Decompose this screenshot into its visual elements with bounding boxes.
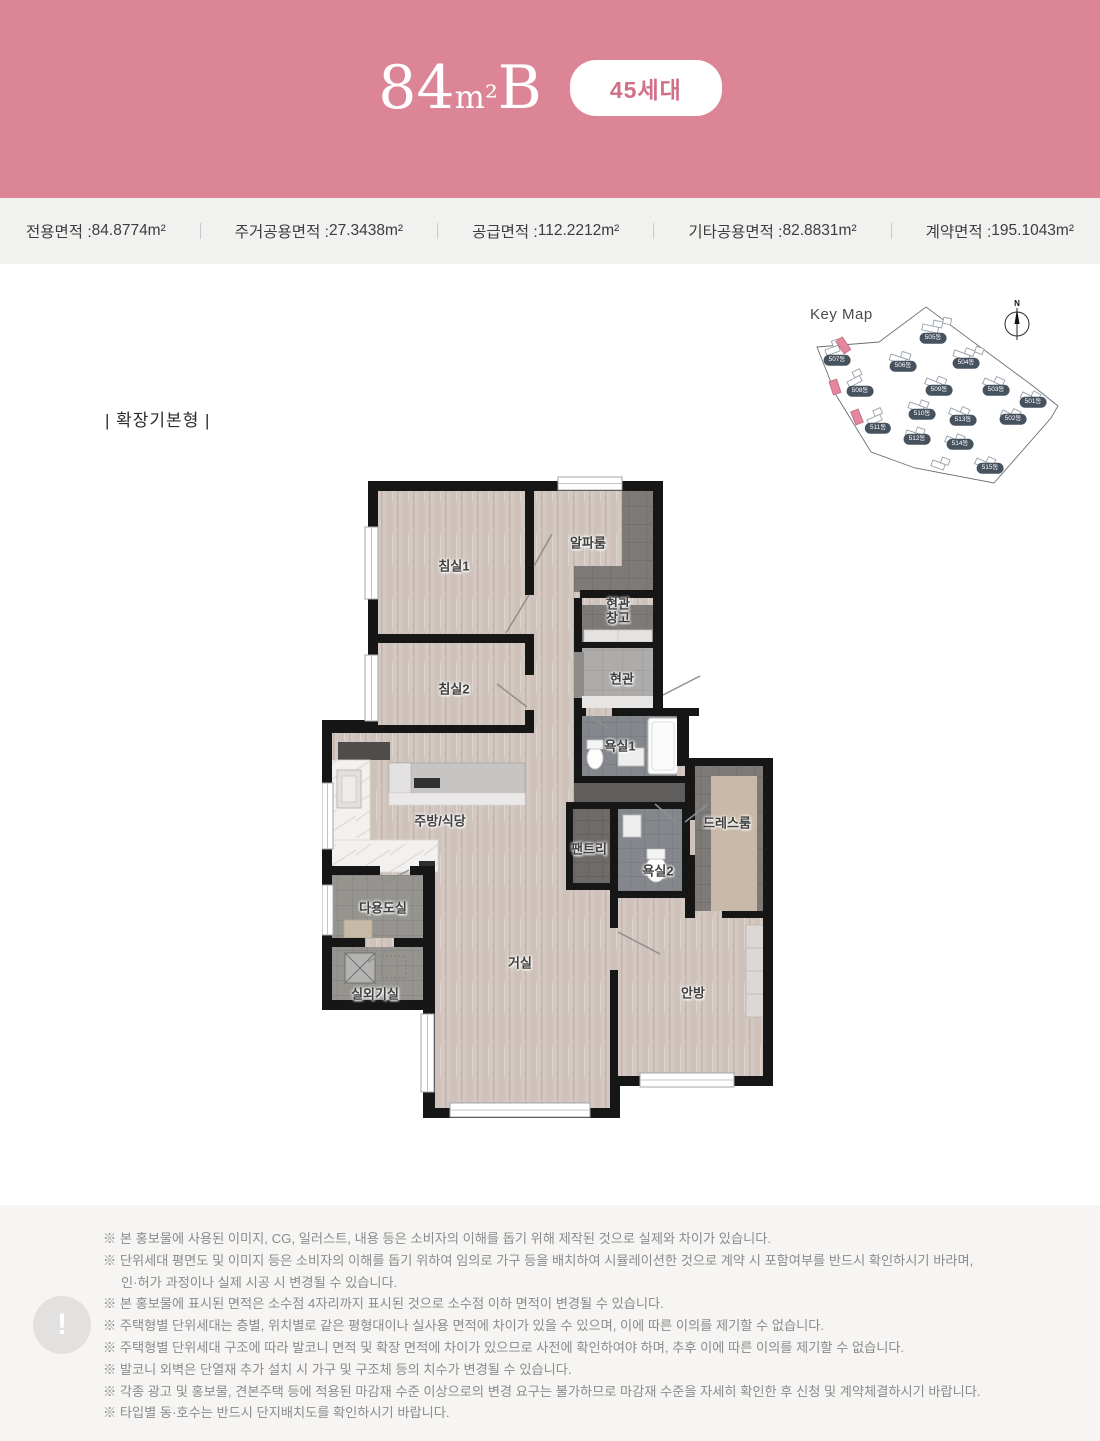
page-title: 84m²B <box>378 58 542 118</box>
area-value: 27.3438m² <box>329 222 403 240</box>
area-label: 전용면적 <box>26 220 92 242</box>
area-item-residential-common: 주거공용면적27.3438m² <box>235 220 403 242</box>
disclaimer-line: ※ 단위세대 평면도 및 이미지 등은 소비자의 이해를 돕기 위하여 임의로 … <box>103 1250 1063 1272</box>
title-type-letter: B <box>498 53 542 123</box>
area-value: 82.8831m² <box>783 222 857 240</box>
building-badge: 503동 <box>983 385 1010 396</box>
disclaimer-line: ※ 주택형별 단위세대 구조에 따라 발코니 면적 및 확장 면적에 차이가 있… <box>103 1337 1063 1359</box>
household-count-text: 45세대 <box>610 77 682 103</box>
area-value: 84.8774m² <box>92 222 166 240</box>
title-unit: m² <box>455 78 498 116</box>
area-item-exclusive: 전용면적84.8774m² <box>26 220 166 242</box>
building-badge: 515동 <box>977 463 1004 474</box>
brochure-page: 84m²B 45세대 전용면적84.8774m² 주거공용면적27.3438m²… <box>0 0 1100 1441</box>
area-item-contract: 계약면적195.1043m² <box>926 220 1074 242</box>
area-item-supply: 공급면적112.2212m² <box>472 220 619 242</box>
area-label: 계약면적 <box>926 220 992 242</box>
area-label: 주거공용면적 <box>235 220 329 242</box>
disclaimer-section: ! ※ 본 홍보물에 사용된 이미지, CG, 일러스트, 내용 등은 소비자의… <box>0 1205 1100 1441</box>
disclaimer-line: 인·허가 과정이나 실제 시공 시 변경될 수 있습니다. <box>103 1272 1063 1294</box>
disclaimer-line: ※ 본 홍보물에 표시된 면적은 소수점 4자리까지 표시된 것으로 소수점 이… <box>103 1293 1063 1315</box>
area-value: 195.1043m² <box>991 222 1074 240</box>
area-item-other-common: 기타공용면적82.8831m² <box>688 220 856 242</box>
disclaimer-line: ※ 본 홍보물에 사용된 이미지, CG, 일러스트, 내용 등은 소비자의 이… <box>103 1228 1063 1250</box>
area-label: 공급면적 <box>472 220 538 242</box>
building-badge: 505동 <box>920 333 947 344</box>
building-badge: 506동 <box>890 361 917 372</box>
building-badge: 502동 <box>1000 414 1027 425</box>
building-badge: 510동 <box>909 409 936 420</box>
building-badge: 514동 <box>947 439 974 450</box>
household-count-badge: 45세대 <box>570 60 722 116</box>
disclaimer-text: ※ 본 홍보물에 사용된 이미지, CG, 일러스트, 내용 등은 소비자의 이… <box>103 1228 1063 1424</box>
building-badge: 507동 <box>824 355 851 366</box>
keymap: N 501동 502동 503동 504동 505동 506동 507동 508… <box>795 298 1075 503</box>
building-badge: 509동 <box>926 385 953 396</box>
title-area-number: 84 <box>378 53 454 123</box>
divider <box>200 223 201 239</box>
floor-plan-svg <box>322 470 782 1120</box>
exclamation-icon: ! <box>33 1296 91 1354</box>
compass-north-label: N <box>1014 299 1020 308</box>
floor-plan: 침실1 알파룸 현관창고 현관 침실2 욕실1 주방/식당 팬트리 드레스룸 욕… <box>322 470 782 1120</box>
divider <box>891 223 892 239</box>
divider <box>653 223 654 239</box>
building-badge: 508동 <box>847 386 874 397</box>
compass-icon: N <box>1005 299 1029 340</box>
disclaimer-line: ※ 발코니 외벽은 단열재 추가 설치 시 가구 및 구조체 등의 치수가 변경… <box>103 1359 1063 1381</box>
plan-variant-label: | 확장기본형 | <box>105 406 210 431</box>
area-value: 112.2212m² <box>538 222 620 240</box>
divider <box>437 223 438 239</box>
area-label: 기타공용면적 <box>688 220 782 242</box>
unit-type-header: 84m²B 45세대 <box>0 0 1100 198</box>
building-badge: 513동 <box>950 415 977 426</box>
building-badge: 504동 <box>953 358 980 369</box>
disclaimer-line: ※ 주택형별 단위세대는 층별, 위치별로 같은 평형대이나 실사용 면적에 차… <box>103 1315 1063 1337</box>
disclaimer-line: ※ 타입별 동·호수는 반드시 단지배치도를 확인하시기 바랍니다. <box>103 1402 1063 1424</box>
building-badge: 501동 <box>1020 397 1047 408</box>
area-info-strip: 전용면적84.8774m² 주거공용면적27.3438m² 공급면적112.22… <box>0 198 1100 264</box>
building-badge: 511동 <box>865 423 891 434</box>
building-badge: 512동 <box>904 434 931 445</box>
disclaimer-line: ※ 각종 광고 및 홍보물, 견본주택 등에 적용된 마감재 수준 이상으로의 … <box>103 1381 1063 1403</box>
